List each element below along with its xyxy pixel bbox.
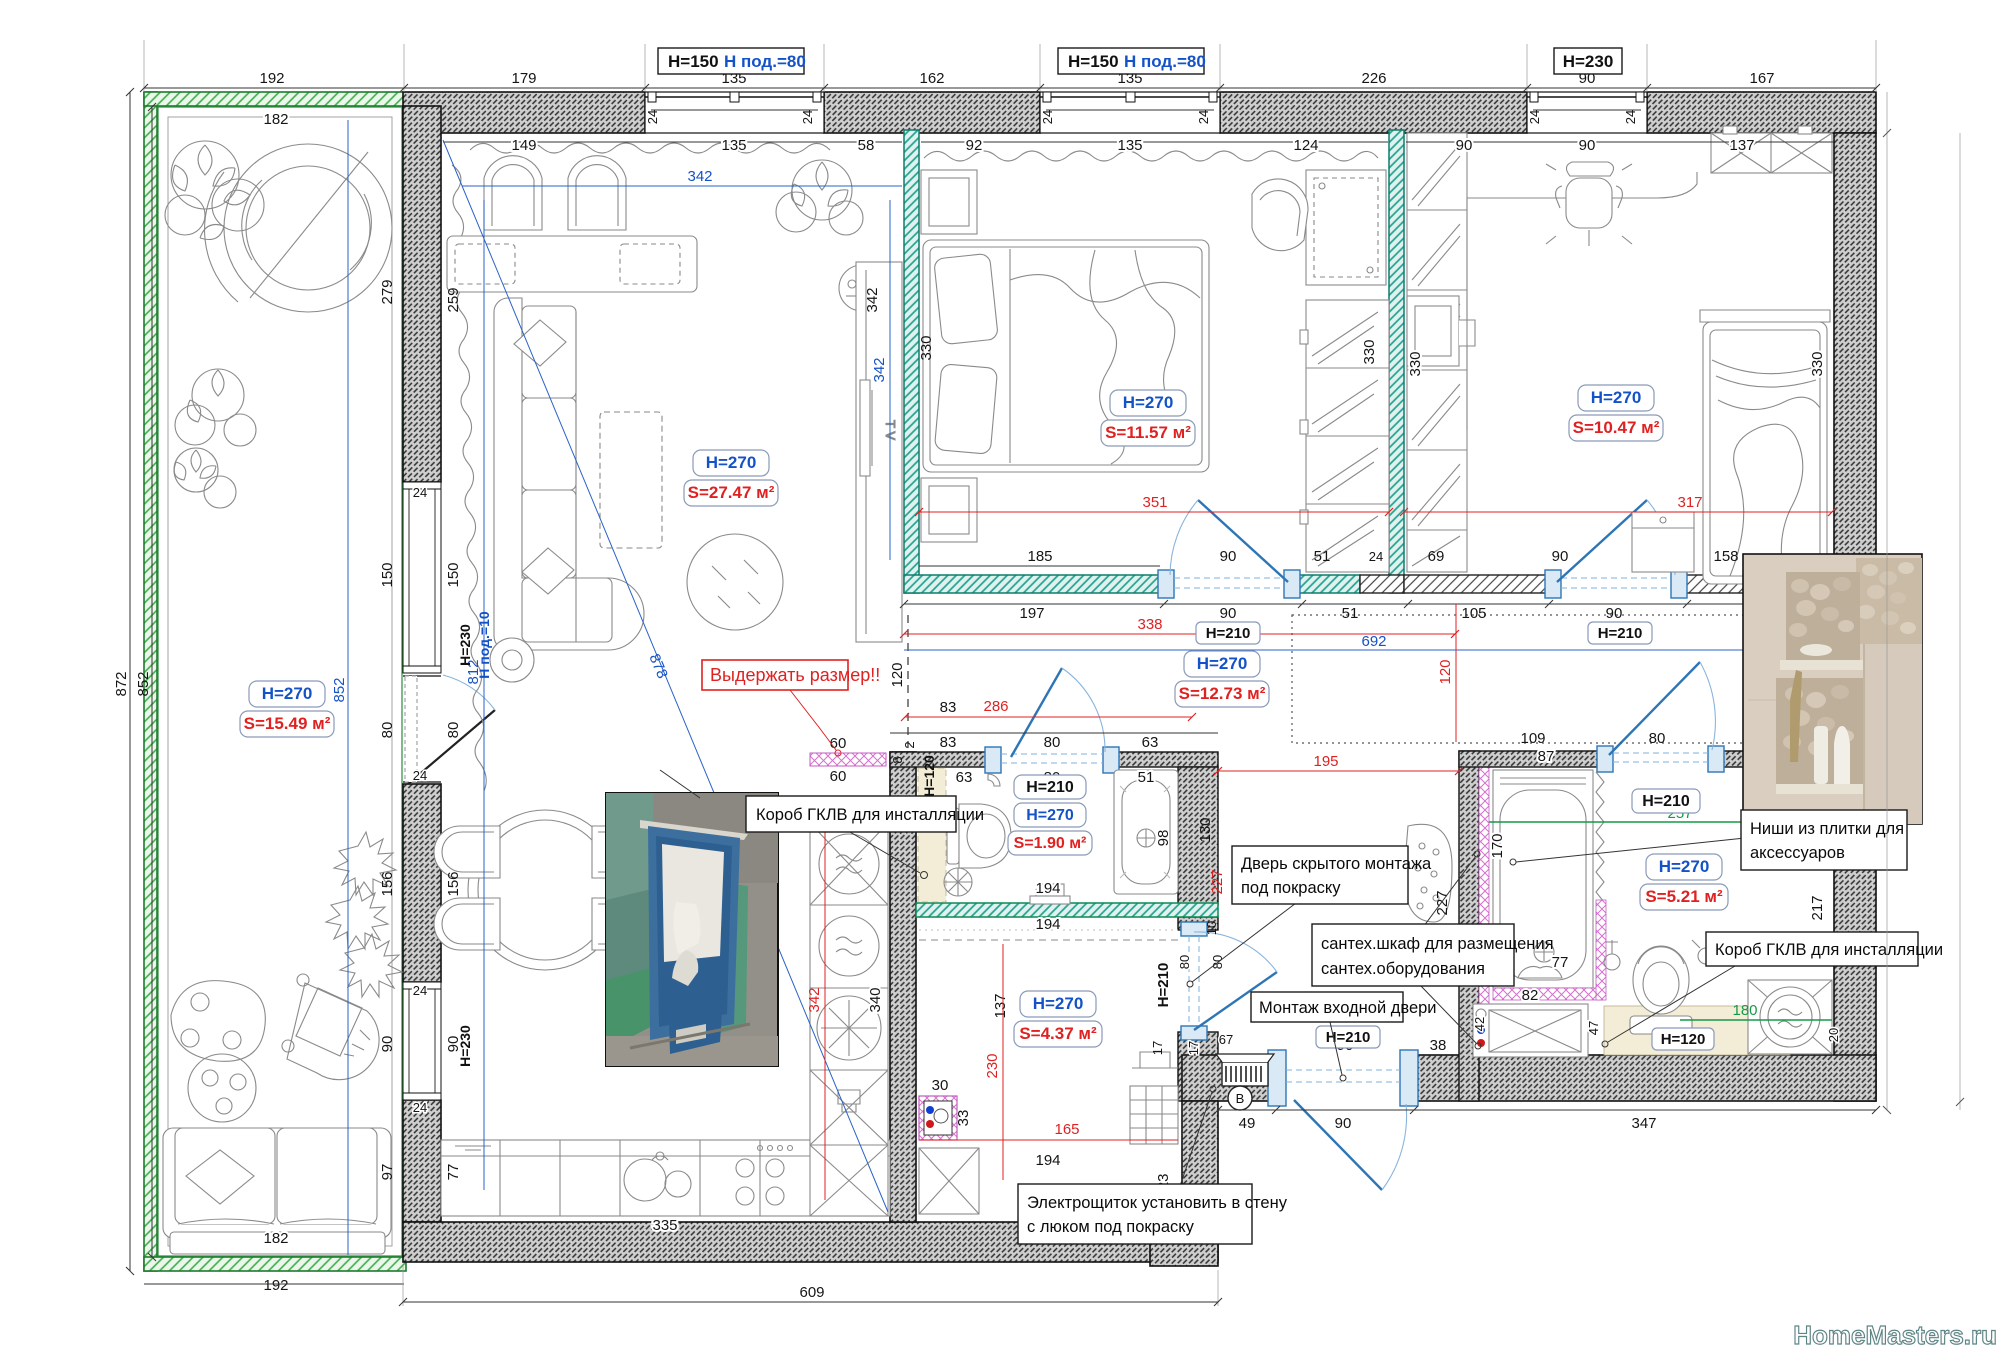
svg-text:80: 80 bbox=[1177, 955, 1192, 969]
svg-text:192: 192 bbox=[263, 1277, 288, 1294]
svg-text:852: 852 bbox=[331, 677, 348, 702]
svg-text:под покраску: под покраску bbox=[1241, 879, 1341, 897]
svg-text:S=27.47 м²: S=27.47 м² bbox=[688, 483, 775, 502]
svg-text:63: 63 bbox=[1142, 734, 1159, 751]
svg-text:230: 230 bbox=[984, 1053, 1001, 1078]
svg-text:330: 330 bbox=[1361, 339, 1378, 364]
svg-text:H=210: H=210 bbox=[1642, 793, 1690, 810]
svg-text:852: 852 bbox=[135, 671, 152, 696]
svg-text:60: 60 bbox=[830, 768, 847, 785]
svg-text:124: 124 bbox=[1293, 137, 1318, 154]
svg-text:90: 90 bbox=[1456, 137, 1473, 154]
svg-text:80: 80 bbox=[1649, 730, 1666, 747]
svg-text:33: 33 bbox=[955, 1110, 972, 1127]
svg-text:сантех.оборудования: сантех.оборудования bbox=[1321, 960, 1485, 978]
svg-text:58: 58 bbox=[858, 137, 875, 154]
svg-text:342: 342 bbox=[871, 357, 888, 382]
svg-text:H=230: H=230 bbox=[457, 1025, 473, 1067]
svg-text:194: 194 bbox=[1035, 916, 1060, 933]
svg-text:83: 83 bbox=[940, 699, 957, 716]
svg-text:H=210: H=210 bbox=[1026, 779, 1074, 796]
svg-text:H=270: H=270 bbox=[262, 684, 313, 703]
svg-text:H=120: H=120 bbox=[921, 755, 937, 797]
svg-text:180: 180 bbox=[1732, 1002, 1757, 1019]
svg-text:330: 330 bbox=[1407, 351, 1424, 376]
svg-text:H=150: H=150 bbox=[668, 52, 719, 71]
svg-text:185: 185 bbox=[1027, 548, 1052, 565]
svg-text:120: 120 bbox=[889, 662, 906, 687]
svg-text:226: 226 bbox=[1361, 70, 1386, 87]
svg-text:135: 135 bbox=[721, 137, 746, 154]
svg-text:90: 90 bbox=[1335, 1115, 1352, 1132]
svg-text:90: 90 bbox=[1552, 548, 1569, 565]
svg-text:10: 10 bbox=[1204, 921, 1219, 935]
svg-text:167: 167 bbox=[1749, 70, 1774, 87]
svg-text:77: 77 bbox=[1552, 954, 1569, 971]
svg-text:135: 135 bbox=[1117, 137, 1142, 154]
svg-text:342: 342 bbox=[687, 168, 712, 185]
svg-text:H=270: H=270 bbox=[1197, 654, 1248, 673]
svg-text:H=120: H=120 bbox=[1661, 1031, 1706, 1048]
svg-text:330: 330 bbox=[1809, 351, 1826, 376]
svg-text:24: 24 bbox=[1623, 110, 1638, 124]
svg-text:24: 24 bbox=[645, 110, 660, 124]
svg-text:17: 17 bbox=[1186, 1041, 1201, 1055]
svg-text:192: 192 bbox=[259, 70, 284, 87]
svg-text:S=15.49 м²: S=15.49 м² bbox=[244, 714, 331, 733]
svg-text:H=270: H=270 bbox=[706, 453, 757, 472]
svg-text:90: 90 bbox=[1220, 605, 1237, 622]
svg-text:2: 2 bbox=[902, 741, 917, 748]
svg-text:В: В bbox=[1236, 1091, 1245, 1106]
svg-text:24: 24 bbox=[413, 983, 427, 998]
svg-text:342: 342 bbox=[864, 287, 881, 312]
svg-text:137: 137 bbox=[1729, 137, 1754, 154]
svg-text:872: 872 bbox=[113, 671, 130, 696]
svg-text:47: 47 bbox=[1586, 1021, 1601, 1035]
svg-text:60: 60 bbox=[830, 735, 847, 752]
svg-text:S=10.47 м²: S=10.47 м² bbox=[1573, 418, 1660, 437]
svg-text:197: 197 bbox=[1019, 605, 1044, 622]
svg-text:149: 149 bbox=[511, 137, 536, 154]
svg-text:24: 24 bbox=[1040, 110, 1055, 124]
svg-text:24: 24 bbox=[413, 1100, 427, 1115]
svg-text:H=230: H=230 bbox=[457, 624, 473, 666]
svg-text:182: 182 bbox=[263, 111, 288, 128]
svg-text:195: 195 bbox=[1313, 753, 1338, 770]
svg-text:150: 150 bbox=[379, 562, 396, 587]
svg-text:49: 49 bbox=[1239, 1115, 1256, 1132]
svg-text:286: 286 bbox=[983, 698, 1008, 715]
svg-text:182: 182 bbox=[263, 1230, 288, 1247]
svg-text:H=270: H=270 bbox=[1659, 857, 1710, 876]
svg-text:80: 80 bbox=[445, 722, 462, 739]
svg-text:Н под.=10: Н под.=10 bbox=[476, 611, 492, 679]
svg-text:17: 17 bbox=[1150, 1041, 1165, 1055]
svg-text:150: 150 bbox=[445, 562, 462, 587]
svg-text:340: 340 bbox=[867, 987, 884, 1012]
svg-text:194: 194 bbox=[1035, 1152, 1060, 1169]
svg-text:Дверь скрытого монтажа: Дверь скрытого монтажа bbox=[1241, 855, 1432, 873]
svg-text:51: 51 bbox=[1342, 605, 1359, 622]
svg-text:HomeMasters.ru: HomeMasters.ru bbox=[1793, 1320, 1997, 1350]
svg-text:179: 179 bbox=[511, 70, 536, 87]
svg-text:24: 24 bbox=[1369, 549, 1383, 564]
svg-text:Н под.=80: Н под.=80 bbox=[1124, 52, 1206, 71]
svg-text:Выдержать размер!!: Выдержать размер!! bbox=[710, 665, 880, 685]
svg-text:Короб ГКЛВ для инсталляции: Короб ГКЛВ для инсталляции bbox=[756, 806, 984, 824]
svg-text:H=150: H=150 bbox=[1068, 52, 1119, 71]
svg-text:H=270: H=270 bbox=[1033, 994, 1084, 1013]
svg-text:Электрощиток установить в стен: Электрощиток установить в стену bbox=[1027, 1194, 1288, 1212]
svg-text:90: 90 bbox=[1579, 137, 1596, 154]
svg-text:H=270: H=270 bbox=[1026, 807, 1074, 824]
svg-text:98: 98 bbox=[1155, 830, 1172, 847]
svg-text:38: 38 bbox=[1430, 1037, 1447, 1054]
svg-text:69: 69 bbox=[1428, 548, 1445, 565]
svg-text:сантех.шкаф для размещения: сантех.шкаф для размещения bbox=[1321, 935, 1554, 953]
svg-text:24: 24 bbox=[413, 768, 427, 783]
svg-text:Ниши из плитки для: Ниши из плитки для bbox=[1750, 820, 1904, 838]
svg-text:с люком под покраску: с люком под покраску bbox=[1027, 1218, 1195, 1236]
svg-text:156: 156 bbox=[445, 871, 462, 896]
svg-text:67: 67 bbox=[1219, 1032, 1233, 1047]
svg-text:156: 156 bbox=[379, 871, 396, 896]
svg-text:120: 120 bbox=[1437, 659, 1454, 684]
svg-text:S=1.90 м²: S=1.90 м² bbox=[1014, 835, 1087, 852]
svg-text:H=210: H=210 bbox=[1206, 625, 1251, 642]
svg-text:351: 351 bbox=[1142, 494, 1167, 511]
svg-text:87: 87 bbox=[1538, 748, 1555, 765]
svg-text:347: 347 bbox=[1631, 1115, 1656, 1132]
svg-text:317: 317 bbox=[1677, 494, 1702, 511]
svg-text:80: 80 bbox=[1044, 734, 1061, 751]
svg-text:24: 24 bbox=[800, 110, 815, 124]
svg-text:30: 30 bbox=[932, 1077, 949, 1094]
svg-text:24: 24 bbox=[1196, 110, 1211, 124]
svg-text:51: 51 bbox=[1138, 769, 1155, 786]
svg-text:аксессуаров: аксессуаров bbox=[1750, 844, 1845, 862]
svg-text:H=270: H=270 bbox=[1123, 393, 1174, 412]
svg-text:8: 8 bbox=[890, 756, 905, 763]
svg-text:90: 90 bbox=[1606, 605, 1623, 622]
svg-text:42: 42 bbox=[1472, 1017, 1487, 1031]
svg-text:92: 92 bbox=[966, 137, 983, 154]
svg-text:105: 105 bbox=[1461, 605, 1486, 622]
svg-text:90: 90 bbox=[379, 1036, 396, 1053]
svg-text:S=4.37 м²: S=4.37 м² bbox=[1019, 1024, 1097, 1043]
svg-text:H=230: H=230 bbox=[1563, 52, 1614, 71]
svg-text:137: 137 bbox=[992, 993, 1009, 1018]
svg-text:83: 83 bbox=[940, 734, 957, 751]
svg-text:194: 194 bbox=[1035, 880, 1060, 897]
svg-text:227: 227 bbox=[1209, 869, 1226, 894]
svg-text:S=5.21 м²: S=5.21 м² bbox=[1645, 887, 1723, 906]
svg-text:51: 51 bbox=[1314, 548, 1331, 565]
svg-text:Н под.=80: Н под.=80 bbox=[724, 52, 806, 71]
svg-text:165: 165 bbox=[1054, 1121, 1079, 1138]
svg-text:24: 24 bbox=[1527, 110, 1542, 124]
svg-text:158: 158 bbox=[1713, 548, 1738, 565]
svg-text:162: 162 bbox=[919, 70, 944, 87]
svg-text:692: 692 bbox=[1361, 633, 1386, 650]
svg-text:130: 130 bbox=[1197, 817, 1214, 842]
svg-text:S=11.57 м²: S=11.57 м² bbox=[1105, 423, 1191, 442]
svg-text:609: 609 bbox=[799, 1284, 824, 1301]
svg-text:H=270: H=270 bbox=[1591, 388, 1642, 407]
svg-text:Монтаж входной двери: Монтаж входной двери bbox=[1259, 999, 1437, 1017]
svg-text:82: 82 bbox=[1522, 987, 1539, 1004]
svg-text:90: 90 bbox=[1220, 548, 1237, 565]
svg-text:227: 227 bbox=[1434, 890, 1451, 915]
svg-text:170: 170 bbox=[1489, 833, 1506, 858]
svg-text:H=210: H=210 bbox=[1155, 963, 1172, 1008]
svg-text:63: 63 bbox=[956, 769, 973, 786]
svg-text:24: 24 bbox=[413, 485, 427, 500]
svg-text:80: 80 bbox=[379, 722, 396, 739]
svg-text:259: 259 bbox=[445, 287, 462, 312]
svg-text:S=12.73 м²: S=12.73 м² bbox=[1179, 684, 1266, 703]
svg-text:342: 342 bbox=[806, 987, 823, 1012]
svg-text:109: 109 bbox=[1520, 730, 1545, 747]
svg-text:Короб ГКЛВ для инсталляции: Короб ГКЛВ для инсталляции bbox=[1715, 941, 1943, 959]
svg-text:H=210: H=210 bbox=[1598, 625, 1643, 642]
svg-text:77: 77 bbox=[445, 1164, 462, 1181]
svg-text:217: 217 bbox=[1809, 895, 1826, 920]
svg-text:279: 279 bbox=[379, 279, 396, 304]
svg-text:330: 330 bbox=[918, 335, 935, 360]
svg-text:97: 97 bbox=[379, 1164, 396, 1181]
svg-text:335: 335 bbox=[652, 1217, 677, 1234]
svg-text:20: 20 bbox=[1826, 1028, 1841, 1042]
svg-text:338: 338 bbox=[1137, 616, 1162, 633]
